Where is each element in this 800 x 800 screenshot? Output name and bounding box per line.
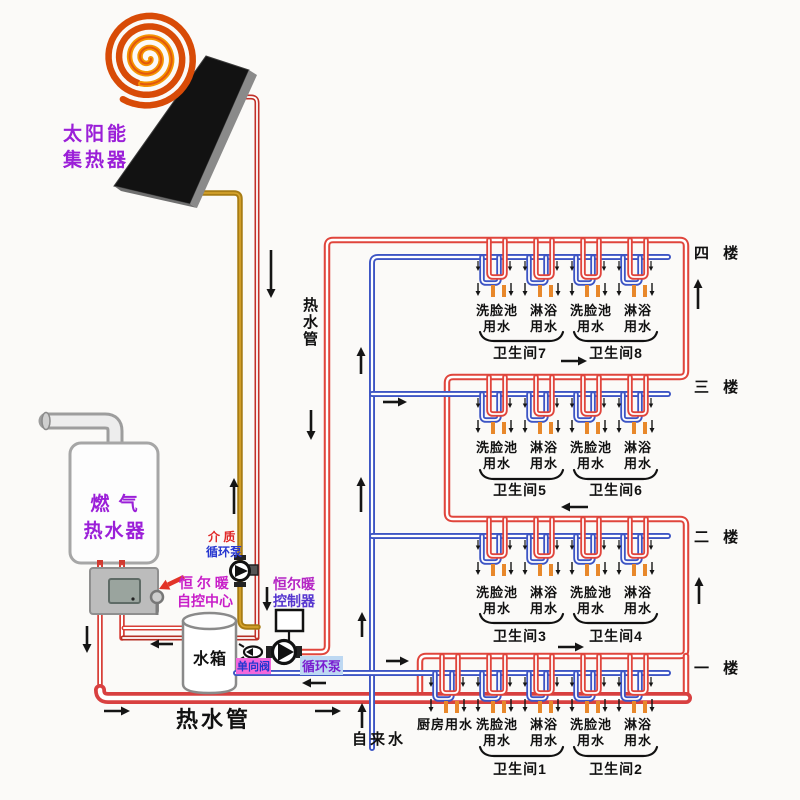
- circulation-pump-label: 循环泵: [300, 656, 343, 675]
- gas-heater-label-2: 热水器: [76, 516, 154, 543]
- fixture-label-2: 用水: [610, 453, 666, 472]
- bathroom-label: 卫生间3: [475, 626, 565, 646]
- control-center-label-2: 自控中心: [177, 591, 233, 611]
- bathroom-label: 卫生间1: [475, 759, 565, 779]
- tap-water-label: 自来水: [352, 728, 406, 749]
- bathroom-label: 卫生间5: [475, 480, 565, 500]
- floor-name: 四 楼: [694, 242, 754, 263]
- floor-name: 三 楼: [694, 376, 754, 397]
- solar-collector-label-2: 集热器: [60, 145, 132, 172]
- hot-water-pipe-bottom-label: 热水管: [176, 702, 251, 734]
- bathroom-label: 卫生间4: [571, 626, 661, 646]
- medium-pump-label-2: 循环泵: [206, 543, 242, 560]
- control-center-label-1: 恒 尔 暖: [179, 573, 229, 593]
- bathroom-label: 卫生间8: [571, 343, 661, 363]
- hot-water-pipe-riser-label: 热水管: [299, 297, 320, 359]
- fixture-label-2: 用水: [610, 730, 666, 749]
- bathroom-label: 卫生间2: [571, 759, 661, 779]
- solar-collector-label-1: 太阳能: [60, 119, 132, 146]
- solar-hot-water-diagram: { "colors": { "pipe_red": "#e0453c", "pi…: [0, 0, 800, 800]
- water-tank-label: 水箱: [193, 645, 227, 669]
- fixture-label-2: 用水: [610, 316, 666, 335]
- floor-name: 一 楼: [694, 657, 754, 678]
- bathroom-label: 卫生间6: [571, 480, 661, 500]
- bathroom-label: 卫生间7: [475, 343, 565, 363]
- fixture-label-2: 用水: [610, 598, 666, 617]
- floor-name: 二 楼: [694, 526, 754, 547]
- controller-label-2: 控制器: [273, 591, 315, 611]
- check-valve-label: 单向阀: [236, 658, 271, 674]
- gas-heater-label-1: 燃 气: [76, 489, 154, 516]
